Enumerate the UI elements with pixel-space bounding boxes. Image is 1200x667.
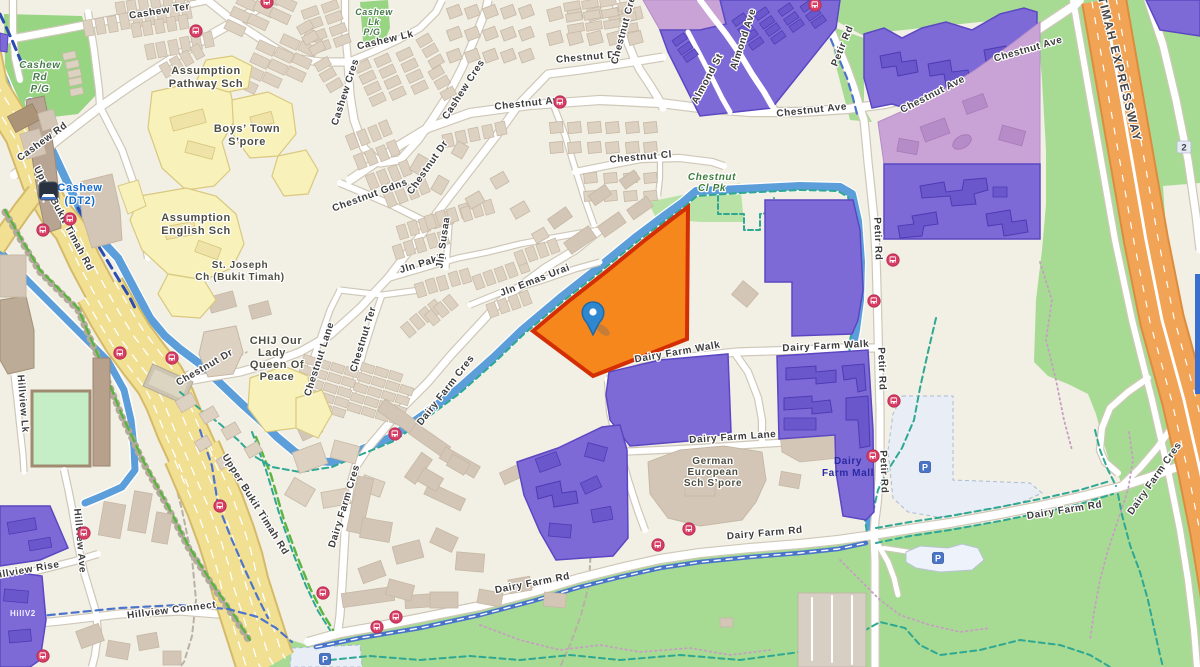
svg-text:HillV2: HillV2 — [10, 609, 36, 618]
svg-text:P/G: P/G — [363, 27, 380, 37]
svg-text:German: German — [692, 456, 733, 467]
svg-text:Cashew: Cashew — [57, 182, 102, 194]
svg-text:Peace: Peace — [260, 371, 295, 383]
svg-text:English Sch: English Sch — [161, 225, 231, 237]
svg-text:(DT2): (DT2) — [64, 195, 95, 207]
svg-text:Dairy: Dairy — [834, 456, 862, 467]
svg-text:P: P — [935, 553, 941, 563]
svg-text:Pathway Sch: Pathway Sch — [169, 78, 243, 90]
svg-text:CHIJ Our: CHIJ Our — [250, 335, 303, 347]
svg-text:P: P — [922, 462, 928, 472]
svg-text:2: 2 — [1181, 143, 1186, 154]
svg-text:Farm Mall: Farm Mall — [822, 468, 874, 479]
svg-text:Lk: Lk — [368, 17, 380, 27]
svg-text:Rd: Rd — [33, 72, 48, 83]
svg-text:Boys’ Town: Boys’ Town — [214, 123, 280, 135]
svg-text:Sch S’pore: Sch S’pore — [684, 478, 742, 489]
svg-text:Petir Rd: Petir Rd — [871, 217, 883, 260]
svg-text:Lady: Lady — [258, 347, 286, 359]
svg-text:P/G: P/G — [30, 84, 49, 95]
svg-text:Assumption: Assumption — [161, 212, 231, 224]
svg-text:Queen Of: Queen Of — [250, 359, 304, 371]
svg-text:Petir Rd: Petir Rd — [875, 347, 887, 390]
svg-text:P: P — [322, 654, 328, 664]
svg-text:Cashew: Cashew — [355, 7, 393, 17]
svg-text:European: European — [688, 467, 739, 478]
svg-text:Cashew: Cashew — [19, 60, 61, 71]
svg-text:Assumption: Assumption — [171, 65, 241, 77]
svg-text:Cl Pk: Cl Pk — [698, 183, 726, 194]
svg-text:St. Joseph: St. Joseph — [212, 260, 269, 271]
svg-text:S’pore: S’pore — [228, 136, 266, 148]
svg-text:Ch (Bukit Timah): Ch (Bukit Timah) — [195, 272, 284, 283]
svg-text:Chestnut: Chestnut — [688, 172, 736, 183]
